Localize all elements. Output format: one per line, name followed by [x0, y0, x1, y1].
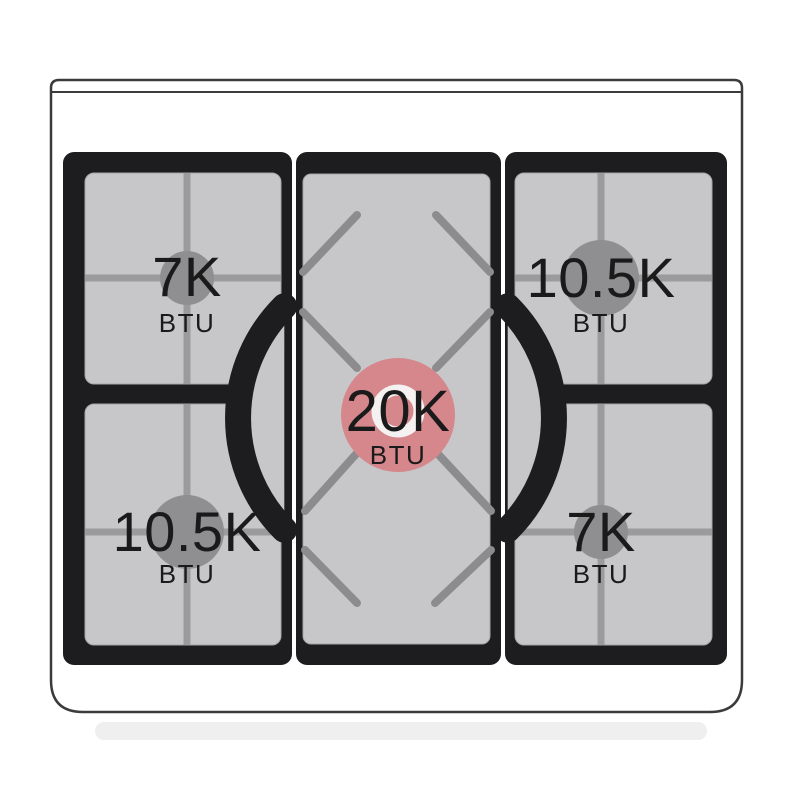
stove-diagram-canvas: 7K BTU 10.5K BTU 20K BTU 10.5K BTU 7K BT…	[0, 0, 800, 800]
burner-unit-label-center: BTU	[370, 440, 427, 470]
burner-unit-label-bottom-right: BTU	[573, 559, 630, 589]
burner-power-label-bottom-left: 10.5K	[113, 500, 262, 563]
burner-power-label-center: 20K	[346, 379, 451, 444]
stove-burner-diagram: 7K BTU 10.5K BTU 20K BTU 10.5K BTU 7K BT…	[0, 0, 800, 800]
burner-unit-label-top-right: BTU	[573, 308, 630, 338]
stove-shadow	[95, 722, 707, 740]
burner-power-label-bottom-right: 7K	[566, 500, 636, 563]
burner-power-label-top-left: 7K	[152, 245, 222, 308]
burner-unit-label-bottom-left: BTU	[159, 559, 216, 589]
burner-unit-label-top-left: BTU	[159, 308, 216, 338]
burner-power-label-top-right: 10.5K	[527, 246, 676, 309]
